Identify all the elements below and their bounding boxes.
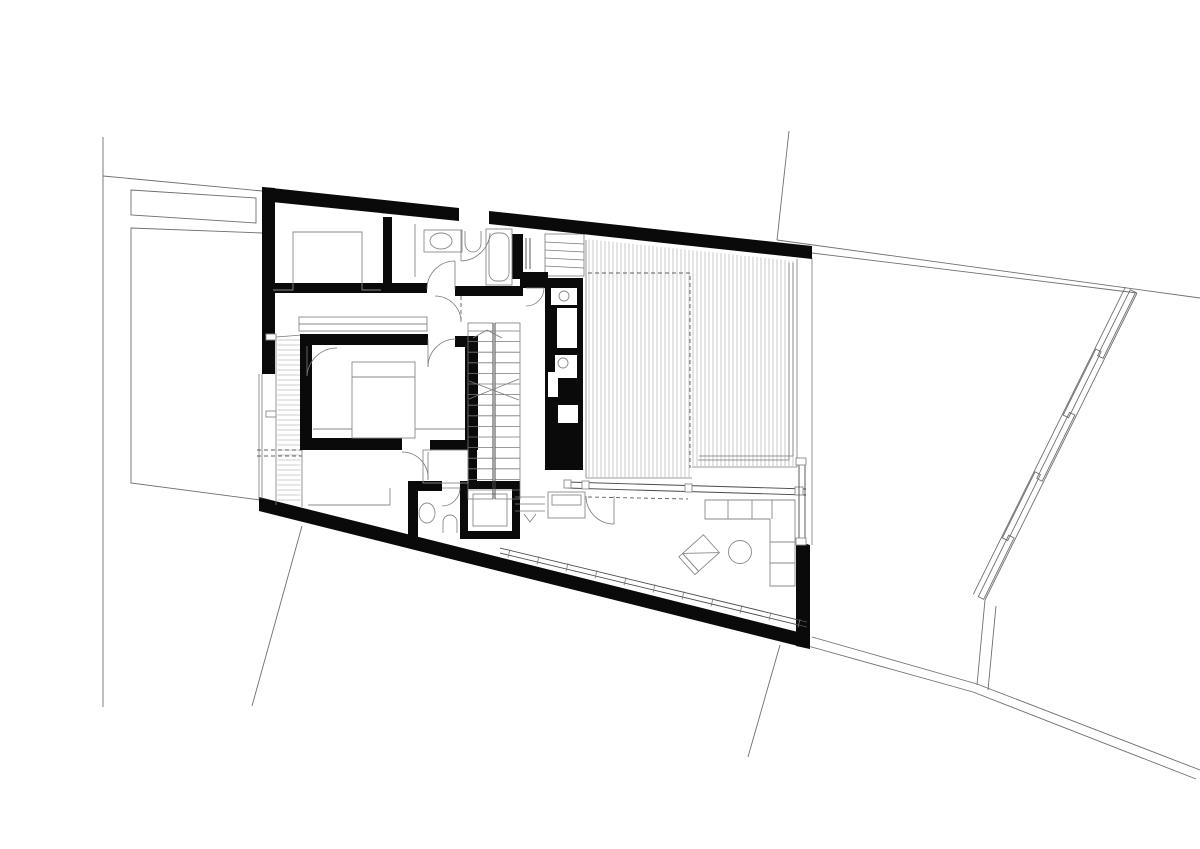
entry-steps bbox=[545, 234, 584, 276]
fence-panel bbox=[1002, 472, 1040, 541]
living-room-door bbox=[586, 496, 614, 524]
bathroom bbox=[415, 224, 512, 285]
south-sliding-glazing bbox=[500, 548, 807, 627]
strip-tie-mid bbox=[266, 411, 276, 417]
bathroom-south-wall bbox=[455, 286, 523, 296]
glazing-mullion-2 bbox=[582, 481, 589, 489]
fence-panel bbox=[1098, 290, 1136, 359]
master-north-wall-a bbox=[300, 334, 428, 345]
garden-wall-north-inner bbox=[812, 253, 1137, 293]
garden-wall-southeast-outer bbox=[977, 684, 1200, 770]
bedroom-1 bbox=[273, 232, 427, 331]
step-tread bbox=[545, 242, 584, 244]
north-wall-east bbox=[489, 211, 812, 259]
floor-plan-drawing bbox=[0, 0, 1200, 849]
wc-room bbox=[419, 503, 457, 533]
pedestal-basin bbox=[443, 515, 457, 533]
master-east-wall bbox=[465, 336, 478, 450]
property-boundary-northeast bbox=[777, 131, 789, 240]
side-yard-outline bbox=[131, 228, 262, 500]
shower-room-interior bbox=[468, 489, 512, 531]
planter-strip bbox=[131, 190, 256, 223]
duct-opening bbox=[548, 372, 558, 397]
duct-niche-1 bbox=[551, 288, 577, 305]
garden-wall-north-outer bbox=[777, 240, 1200, 298]
garden-wall-southeast-inner bbox=[973, 692, 1196, 779]
duct-top-block bbox=[520, 272, 548, 288]
master-bedroom bbox=[313, 362, 465, 438]
master-south-wall-a bbox=[312, 438, 402, 450]
stair-hall-door bbox=[435, 296, 461, 322]
hall-nook-outline bbox=[423, 450, 468, 483]
duct-niche-2 bbox=[557, 308, 577, 348]
glazing-mullion-1 bbox=[564, 480, 571, 488]
neighbor-fence-panels bbox=[973, 287, 1137, 600]
bedroom1-door bbox=[428, 339, 456, 367]
property-boundary-southwest bbox=[252, 526, 302, 706]
bedroom1-south-wall bbox=[262, 283, 427, 293]
double-bed bbox=[352, 362, 415, 438]
entry-steps-outline bbox=[545, 234, 584, 276]
bedroom2-floor-line bbox=[308, 488, 390, 505]
hall-nook-wall bbox=[468, 440, 477, 485]
garden-wall-south-inner bbox=[808, 646, 973, 692]
garden-wall-south-outer bbox=[812, 637, 977, 684]
roof-overhang-dashed bbox=[588, 273, 690, 468]
fence-to-wall-connector-b bbox=[988, 606, 996, 690]
fence-to-wall-connector-a bbox=[977, 600, 985, 685]
living-roof-dashed bbox=[588, 497, 688, 499]
property-boundary-south bbox=[748, 645, 780, 757]
bedroom-2 bbox=[308, 450, 468, 505]
property-boundary-northwest bbox=[103, 176, 262, 191]
closet-niche-outline bbox=[273, 232, 381, 290]
deck-railing-inner bbox=[698, 263, 789, 460]
down-arrow bbox=[524, 514, 536, 522]
fence-panel bbox=[1063, 349, 1101, 418]
floor-plan-page bbox=[0, 0, 1200, 849]
duct-niche-4 bbox=[558, 405, 578, 423]
lounge-chair bbox=[679, 535, 720, 575]
east-window-cap-bottom bbox=[796, 538, 806, 545]
east-wall bbox=[796, 541, 810, 649]
living-room bbox=[679, 500, 795, 586]
fence-panel bbox=[978, 535, 1014, 599]
stair-flight-right bbox=[495, 323, 520, 499]
corner-sofa bbox=[705, 500, 795, 586]
step-tread bbox=[545, 250, 584, 252]
bathroom-door bbox=[427, 261, 455, 289]
fence-edge-b bbox=[973, 287, 1125, 594]
toilet bbox=[465, 231, 481, 252]
step-tread bbox=[545, 266, 584, 268]
duct-room-door bbox=[526, 288, 544, 306]
wc-west-wall bbox=[408, 485, 418, 540]
deck-decking-hatch bbox=[589, 239, 793, 477]
master-west-wall bbox=[300, 334, 312, 450]
wc-toilet bbox=[419, 503, 435, 523]
wc-door bbox=[442, 488, 460, 506]
interior-walls bbox=[262, 217, 585, 540]
glazing-mullion-3 bbox=[685, 484, 692, 492]
north-wall-west bbox=[262, 187, 459, 221]
exterior-stair-treads bbox=[278, 340, 301, 500]
bathroom-west-wall bbox=[383, 217, 392, 291]
strip-edge-top bbox=[276, 335, 302, 337]
east-window-cap-top bbox=[796, 458, 806, 465]
strip-tie-top bbox=[266, 334, 276, 340]
south-wall bbox=[259, 497, 810, 649]
fence-panel bbox=[1037, 412, 1075, 481]
round-coffee-table bbox=[729, 541, 752, 564]
step-tread bbox=[545, 258, 584, 260]
bedroom2-door bbox=[402, 452, 428, 480]
fence-edge-a bbox=[985, 293, 1137, 600]
west-wall bbox=[262, 187, 275, 374]
south-glazing-a bbox=[500, 548, 807, 622]
